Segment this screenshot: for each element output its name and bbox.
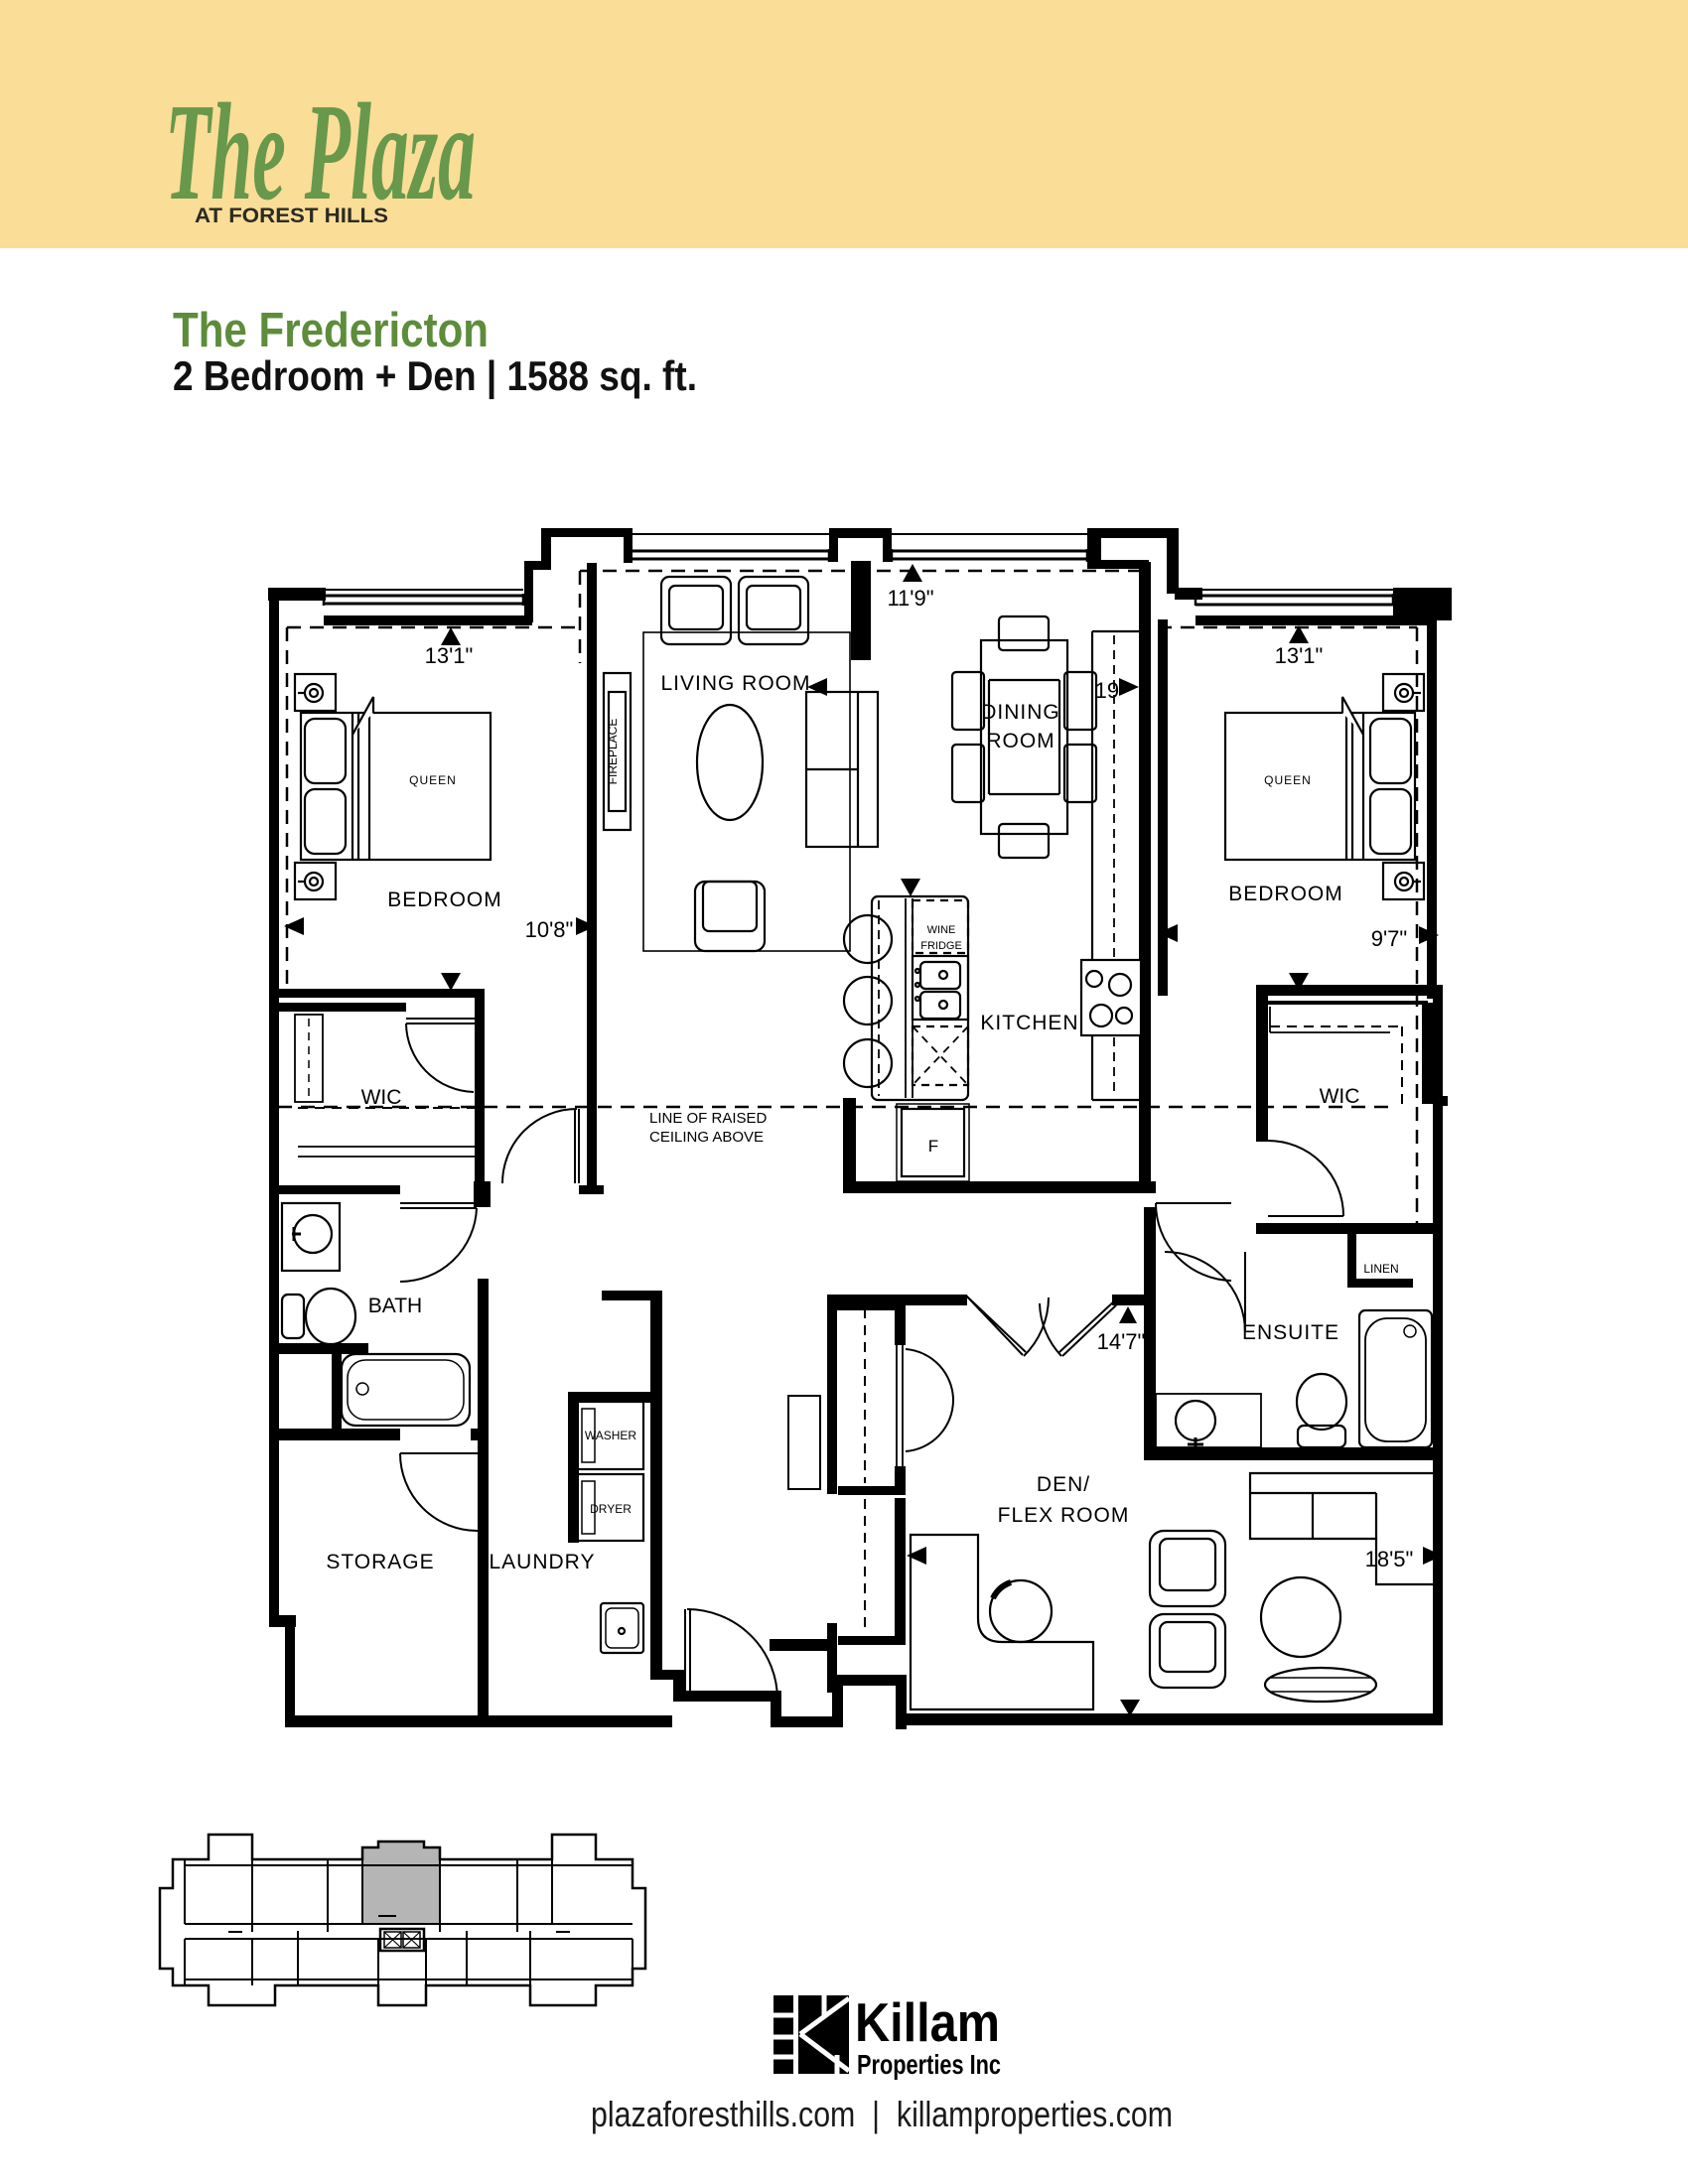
svg-text:plazaforesthills.com | killa: plazaforesthills.com | killamproperties.… [591, 2094, 1173, 2134]
svg-text:LINE OF RAISED: LINE OF RAISED [649, 1110, 768, 1127]
svg-text:11'9": 11'9" [887, 586, 933, 611]
svg-text:WIC: WIC [1320, 1085, 1360, 1108]
svg-text:Properties Inc: Properties Inc [857, 2049, 1001, 2080]
svg-text:WASHER: WASHER [585, 1429, 637, 1442]
svg-text:13'1": 13'1" [425, 643, 474, 668]
svg-text:ROOM: ROOM [986, 730, 1055, 752]
svg-text:LAUNDRY: LAUNDRY [490, 1551, 596, 1573]
svg-text:DRYER: DRYER [590, 1502, 632, 1516]
svg-text:2 Bedroom + Den | 1588 sq. ft.: 2 Bedroom + Den | 1588 sq. ft. [173, 352, 697, 400]
svg-text:14'7": 14'7" [1097, 1329, 1146, 1354]
svg-text:LINEN: LINEN [1363, 1262, 1398, 1276]
svg-text:BEDROOM: BEDROOM [1228, 883, 1343, 905]
svg-text:LIVING ROOM: LIVING ROOM [660, 672, 810, 695]
svg-text:WIC: WIC [361, 1086, 402, 1109]
svg-text:WINE: WINE [927, 924, 956, 936]
svg-text:STORAGE: STORAGE [326, 1551, 434, 1573]
svg-text:F: F [928, 1137, 938, 1156]
svg-text:FLEX ROOM: FLEX ROOM [998, 1504, 1130, 1527]
svg-text:BATH: BATH [368, 1295, 422, 1317]
svg-text:QUEEN: QUEEN [1264, 773, 1312, 787]
svg-text:CEILING ABOVE: CEILING ABOVE [649, 1129, 764, 1146]
svg-text:KITCHEN: KITCHEN [980, 1012, 1078, 1034]
svg-text:13'1": 13'1" [1275, 643, 1324, 668]
svg-text:BEDROOM: BEDROOM [387, 888, 502, 911]
svg-text:FIREPLACE: FIREPLACE [606, 719, 620, 785]
svg-text:FRIDGE: FRIDGE [920, 940, 962, 952]
svg-text:Killam: Killam [855, 1991, 1000, 2053]
svg-text:9'7": 9'7" [1371, 926, 1407, 951]
svg-text:DINING: DINING [981, 701, 1060, 724]
svg-text:AT FOREST HILLS: AT FOREST HILLS [195, 205, 388, 227]
svg-text:18'5": 18'5" [1365, 1547, 1414, 1571]
svg-text:DEN/: DEN/ [1037, 1473, 1090, 1496]
svg-text:ENSUITE: ENSUITE [1242, 1321, 1339, 1344]
svg-text:QUEEN: QUEEN [409, 773, 457, 787]
svg-text:10'8": 10'8" [525, 917, 574, 942]
svg-text:The Fredericton: The Fredericton [173, 304, 489, 357]
